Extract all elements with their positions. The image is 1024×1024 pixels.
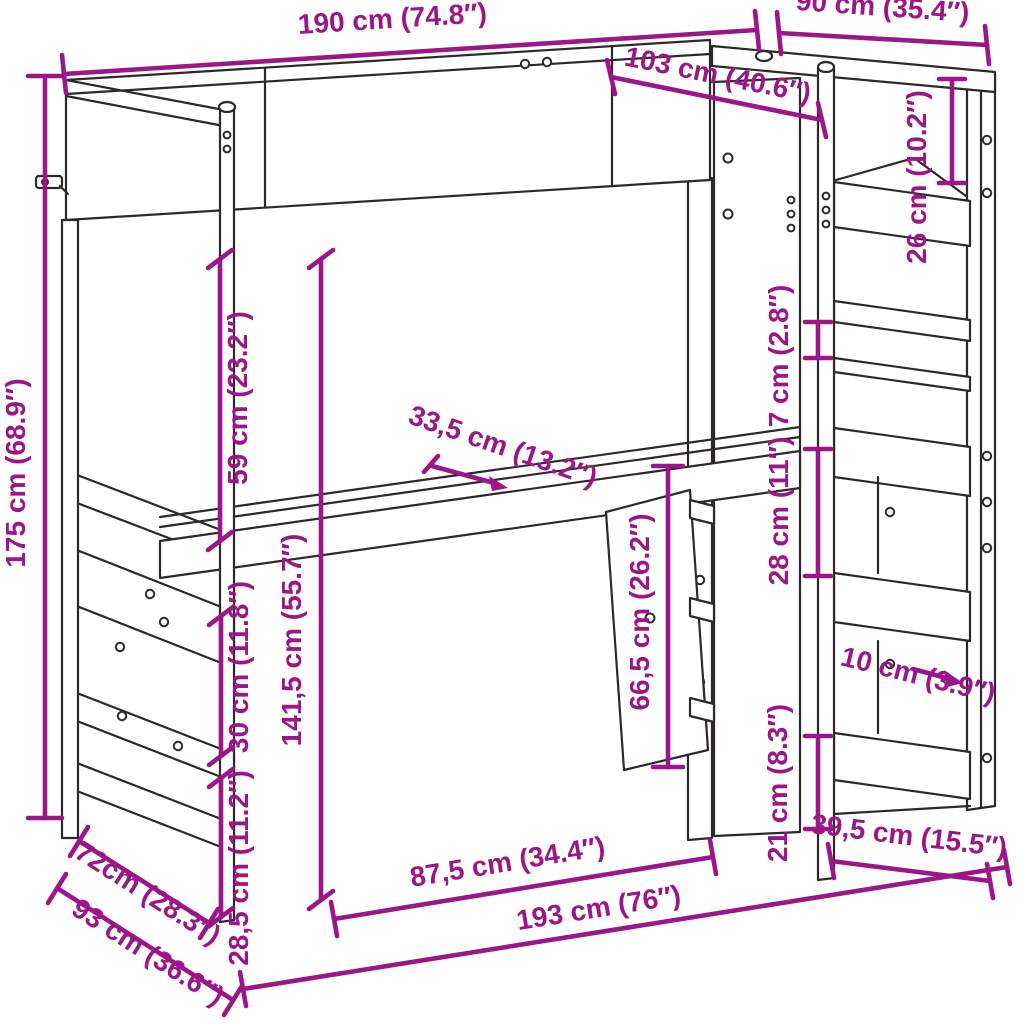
dimension-label-90: 90 cm (35.4″): [795, 0, 970, 28]
loft-bed-dimension-drawing: 190 cm (74.8″) 90 cm (35.4″) 103 cm (40.…: [0, 0, 1024, 1024]
left-bench-slats: [64, 470, 234, 852]
dimension-label-175: 175 cm (68.9″): [0, 378, 31, 567]
dimension-label-87-5: 87,5 cm (34.4″): [408, 830, 608, 892]
dimension-label-59: 59 cm (23.2″): [222, 311, 253, 485]
dimension-label-39-5: 39,5 cm (15.5″): [809, 808, 1008, 863]
left-back-post: [62, 220, 78, 838]
dimension-label-66-5: 66,5 cm (26.2″): [624, 513, 655, 710]
dimension-label-190: 190 cm (74.8″): [297, 0, 488, 40]
dimension-label-21: 21 cm (8.3″): [762, 704, 793, 862]
dimension-label-30: 30 cm (11.8″): [223, 581, 254, 753]
desk-side-panel: [606, 490, 708, 770]
dimension-label-28: 28 cm (11″): [763, 437, 794, 586]
dimension-label-7: 7 cm (2.8″): [763, 285, 794, 428]
dimension-label-28-5: 28,5 cm (11.2″): [223, 770, 254, 966]
furniture-linework: [36, 40, 995, 922]
dimension-label-26: 26 cm (10.2″): [901, 90, 932, 264]
dimension-label-141-5: 141,5 cm (55.7″): [276, 534, 307, 747]
dimension-diagram-page: 190 cm (74.8″) 90 cm (35.4″) 103 cm (40.…: [0, 0, 1024, 1024]
